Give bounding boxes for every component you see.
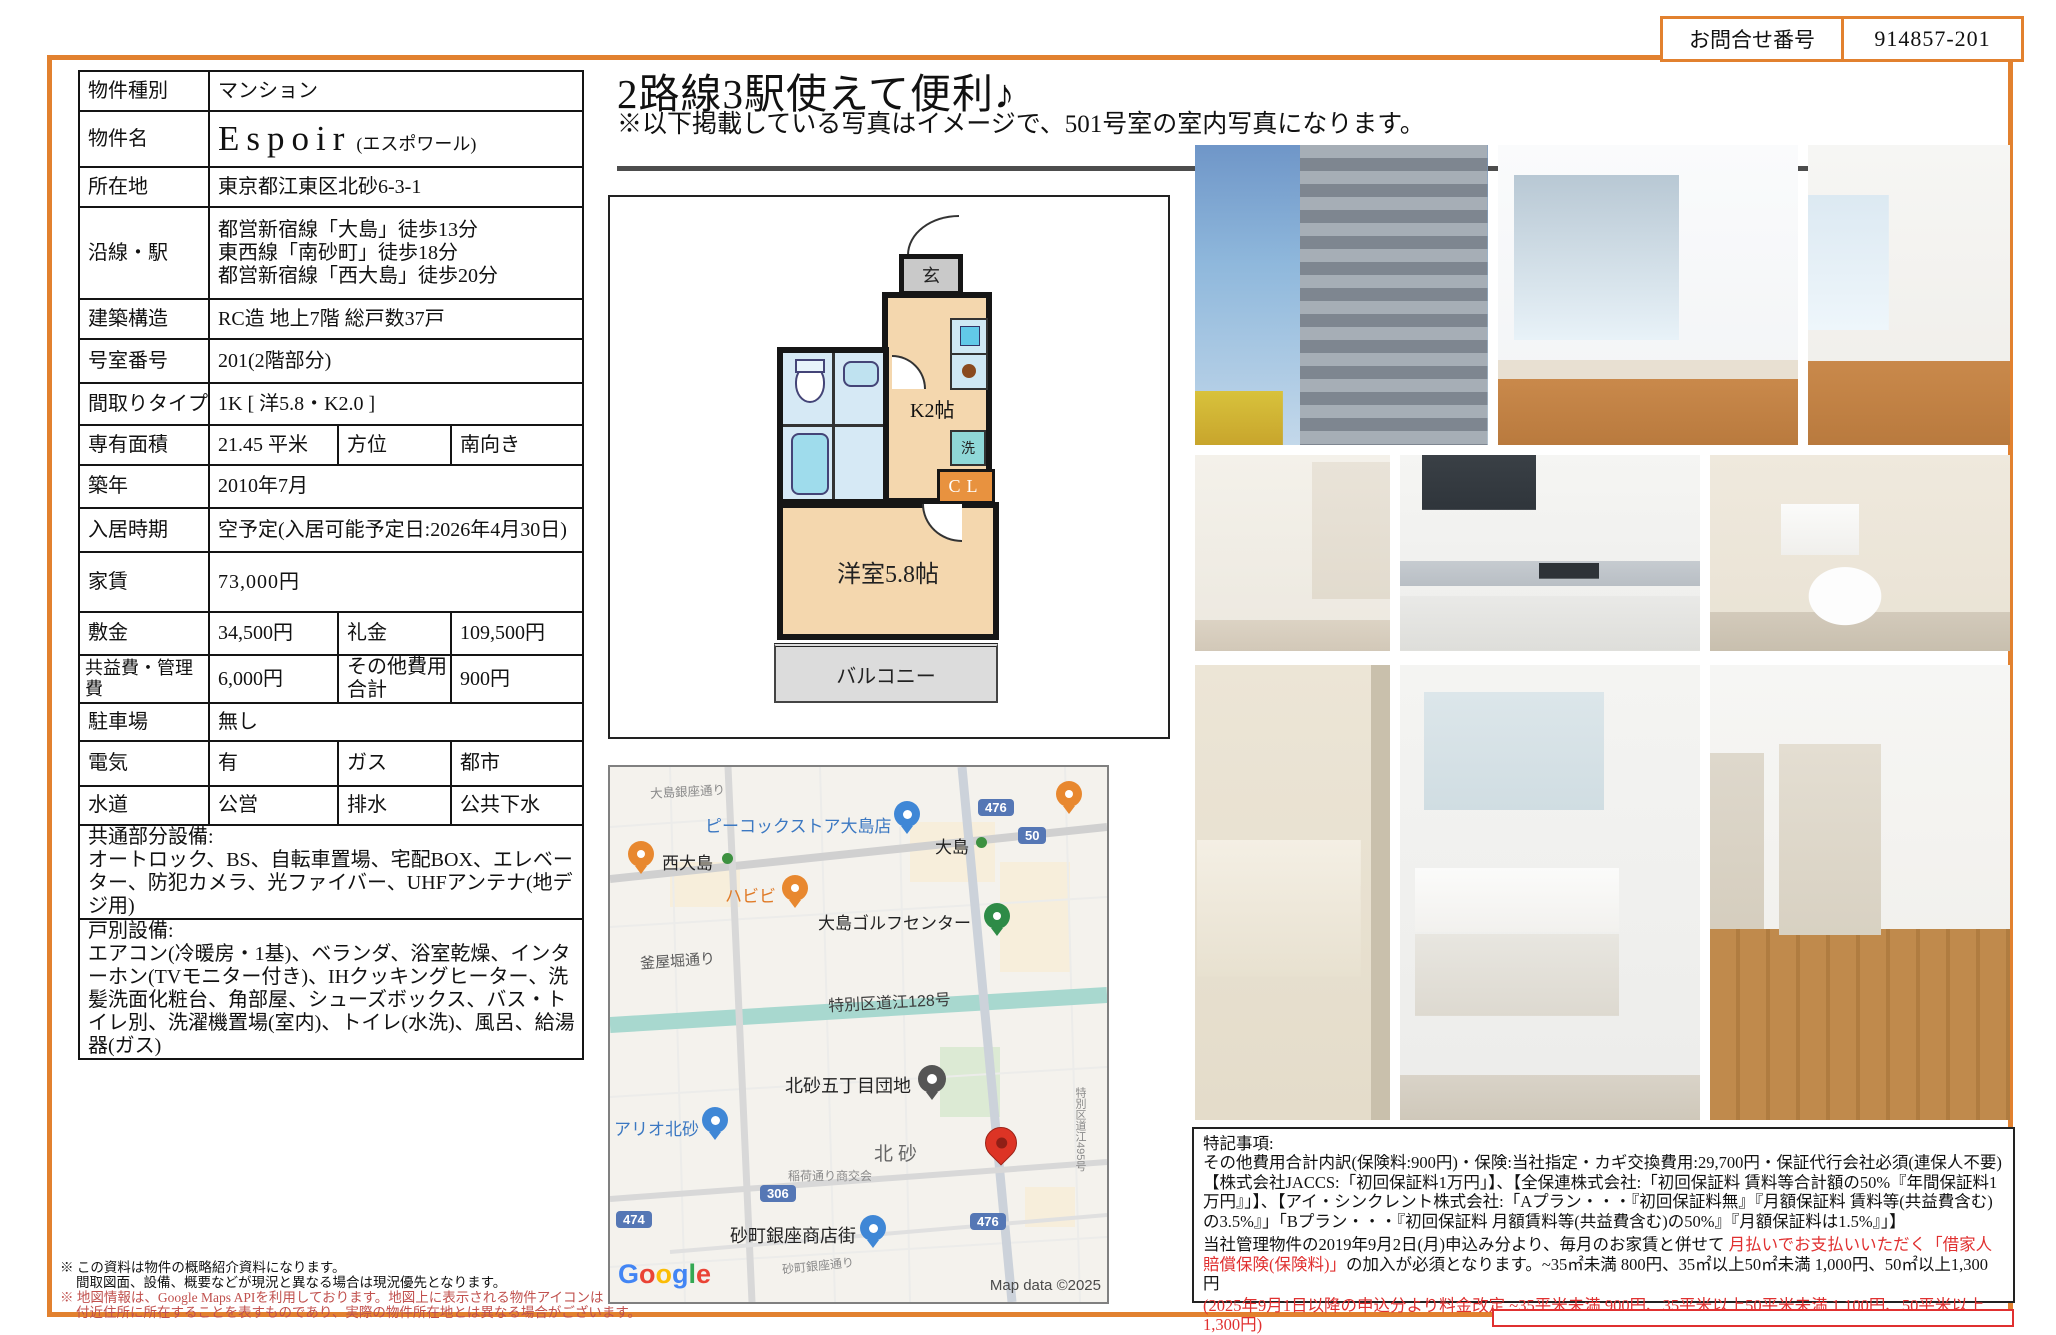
row-label: 方位 [338,425,451,465]
property-flyer-page: { "page": { "inquiry_label": "お問合せ番号", "… [0,0,2056,1323]
pin-tail [926,1092,938,1100]
street-label: 特別区道江495号 [1072,1087,1088,1171]
inquiry-number-box: お問合せ番号 914857-201 [1660,16,2024,62]
row-label: 共益費・管理費 [79,655,209,703]
photo-hallway [1195,455,1390,651]
row-label: 物件名 [79,111,209,167]
plan-laundry: 洗 [950,430,986,466]
pin-tail [867,1240,879,1248]
address: 東京都江東区北砂6-3-1 [209,167,583,207]
other-fees: 900円 [451,655,583,703]
built-year: 2010年7月 [209,465,583,508]
plan-sink [960,326,980,346]
row-label: 号室番号 [79,339,209,383]
housing-complex-pin[interactable] [918,1065,946,1093]
common-facilities: 共通部分設備: オートロック、BS、自転車置場、宅配BOX、エレベーター、防犯カ… [79,825,583,919]
photo-room-interior [1808,145,2010,445]
special-notes-box: 特記事項: その他費用合計内訳(保険料:900円)・保険:当社指定・カギ交換費用… [1192,1127,2015,1303]
structure: RC造 地上7階 総戸数37戸 [209,299,583,339]
footnote-line1: ※ この資料は物件の概略紹介資料になります。 [60,1261,346,1276]
map-attribution: Map data ©2025 [990,1277,1101,1294]
footnote-line3: ※ 地図情報は、Google Maps APIを利用しております。地図上に表示さ… [60,1291,604,1306]
plan-main-room: 洋室5.8帖 [777,502,999,640]
poi-label-ario[interactable]: アリオ北砂 [614,1115,699,1140]
row-label: 築年 [79,465,209,508]
row-label: 沿線・駅 [79,207,209,299]
plan-kitchen-unit [950,318,988,390]
special-notes-para1: その他費用合計内訳(保険料:900円)・保険:当社指定・カギ交換費用:29,70… [1203,1153,2004,1231]
photo-washbasin [1400,665,1700,1120]
row-label: 敷金 [79,612,209,655]
poi-label-nishi-oshima[interactable]: 西大島 [662,849,713,874]
street-label: 稲荷通り商交会 [788,1167,872,1184]
parking: 無し [209,703,583,741]
plan-laundry-label: 洗 [961,438,975,458]
restaurant-pin[interactable] [782,875,808,901]
move-in-date: 空予定(入居可能予定日:2026年4月30日) [209,508,583,552]
unit-facilities-heading: 戸別設備: [88,920,582,943]
plan-bath-block [777,347,889,505]
route-shield-476b: 476 [970,1213,1006,1230]
floor-area: 21.45 平米 [209,425,338,465]
row-label: 所在地 [79,167,209,207]
photo-corridor [1710,665,2010,1120]
street-label: 北砂 [874,1139,922,1166]
poi-label-habibi[interactable]: ハビビ [725,882,776,907]
common-facilities-heading: 共通部分設備: [88,826,582,849]
stations: 都営新宿線「大島」徒歩13分 東西線「南砂町」徒歩18分 都営新宿線「西大島」徒… [209,207,583,299]
page-subtitle: ※以下掲載している写真はイメージで、501号室の室内写真になります。 [617,104,1425,140]
pin-tail [991,928,1003,936]
plan-bath-divider-h [783,424,883,427]
property-name-kana: (エスポワール) [356,134,476,154]
poi-label-peacock[interactable]: ピーコックストア大島店 [705,812,892,837]
special-notes-para2: 当社管理物件の2019年9月2日(月)申込み分より、毎月のお家賃と併せて 月払い… [1203,1235,2004,1293]
property-spec-table: 物件種別 マンション 物件名 Espoir (エスポワール) 所在地 東京都江東… [78,70,584,1060]
gas: 都市 [451,741,583,786]
property-name: Espoir (エスポワール) [209,111,583,167]
restaurant-pin[interactable] [628,841,654,867]
bottom-right-red-box [1492,1309,2014,1327]
golf-pin[interactable] [984,903,1010,929]
photo-bathroom [1195,665,1390,1120]
plan-balcony: バルコニー [774,643,998,703]
photo-building-exterior [1195,145,1488,445]
plan-kitchen-unit-divider [952,353,986,355]
entrance-door-arc [907,215,959,255]
row-label: 排水 [338,786,451,825]
plan-balcony-label: バルコニー [836,660,936,689]
poi-label-oshima[interactable]: 大島 [935,833,969,858]
plan-bathtub-fixture [791,433,829,495]
unit-facilities: 戸別設備: エアコン(冷暖房・1基)、ベランダ、浴室乾燥、インターホン(TVモニ… [79,919,583,1059]
station-tree-icon [976,837,987,848]
plan-entrance: 玄 [899,254,963,296]
map-roads [610,767,1107,1302]
plan-washbasin-fixture [843,361,879,387]
footnote-line4: 付近住所に所在することを表すものであり、実際の物件所在地とは異なる場合がございま… [76,1306,641,1321]
pin-tail [901,826,913,834]
special-notes-para2a: 当社管理物件の2019年9月2日(月)申込み分より、毎月のお家賃と併せて [1203,1235,1729,1254]
row-label: 駐車場 [79,703,209,741]
room-number: 201(2階部分) [209,339,583,383]
google-logo: Google [618,1259,711,1290]
poi-label-shotengai[interactable]: 砂町銀座商店街 [730,1222,856,1248]
plan-toilet-tank [795,359,825,373]
electricity: 有 [209,741,338,786]
deposit: 34,500円 [209,612,338,655]
route-shield-50: 50 [1018,827,1046,844]
route-shield-306: 306 [760,1185,796,1202]
shopping-cart-pin[interactable] [860,1215,886,1241]
unit-facilities-list: エアコン(冷暖房・1基)、ベランダ、浴室乾燥、インターホン(TVモニター付き)、… [88,943,582,1058]
property-type: マンション [209,71,583,111]
photo-room-window [1498,145,1798,445]
row-label: 入居時期 [79,508,209,552]
route-shield-476: 476 [978,799,1014,816]
common-facilities-list: オートロック、BS、自転車置場、宅配BOX、エレベーター、防犯カメラ、光ファイバ… [88,849,582,918]
key-money: 109,500円 [451,612,583,655]
street-label: 大島銀座通り [650,779,726,802]
row-label: 建築構造 [79,299,209,339]
floor-plan-box: 玄 K2帖 洗 CL 洋室5.8帖 バルコニー [608,195,1170,739]
shopping-cart-pin[interactable] [894,801,920,827]
water: 公営 [209,786,338,825]
drainage: 公共下水 [451,786,583,825]
row-label: 水道 [79,786,209,825]
rent-amount: 73,000円 [209,552,583,612]
row-label: 専有面積 [79,425,209,465]
row-label: その他費用合計 [338,655,451,703]
plan-closet: CL [937,469,995,504]
row-label: ガス [338,741,451,786]
station-tree-icon [722,853,733,864]
maintenance-fee: 6,000円 [209,655,338,703]
poi-label-golf[interactable]: 大島ゴルフセンター [818,909,971,934]
layout-type: 1K [ 洋5.8・K2.0 ] [209,383,583,425]
pin-tail [789,900,801,908]
plan-kitchen-label: K2帖 [910,394,954,423]
plan-closet-label: CL [948,476,983,497]
special-notes-heading: 特記事項: [1203,1134,2004,1153]
inquiry-label: お問合せ番号 [1663,19,1844,59]
plan-entrance-label: 玄 [922,262,940,288]
row-label: 電気 [79,741,209,786]
footnote-line2: 間取図面、設備、概要などが現況と異なる場合は現況優先となります。 [76,1276,506,1291]
shopping-bag-pin[interactable] [702,1107,728,1133]
photo-kitchen [1400,455,1700,651]
route-shield-474: 474 [616,1211,652,1228]
inquiry-number: 914857-201 [1844,26,2021,52]
photo-toilet [1710,455,2010,651]
plan-burner [962,364,976,378]
facing-direction: 南向き [451,425,583,465]
neighborhood-map[interactable]: 大島銀座通り 釜屋堀通り 特別区道江128号 北砂 稲荷通り商交会 砂町銀座通り… [608,765,1109,1304]
row-label: 家賃 [79,552,209,612]
restaurant-pin[interactable] [1056,781,1082,807]
plan-main-room-label: 洋室5.8帖 [837,554,939,589]
row-label: 物件種別 [79,71,209,111]
property-name-en: Espoir [218,119,351,158]
pin-tail [709,1132,721,1140]
pin-tail [635,866,647,874]
row-label: 礼金 [338,612,451,655]
poi-label-danchi[interactable]: 北砂五丁目団地 [785,1072,911,1098]
pin-tail [1063,806,1075,814]
row-label: 間取りタイプ [79,383,209,425]
